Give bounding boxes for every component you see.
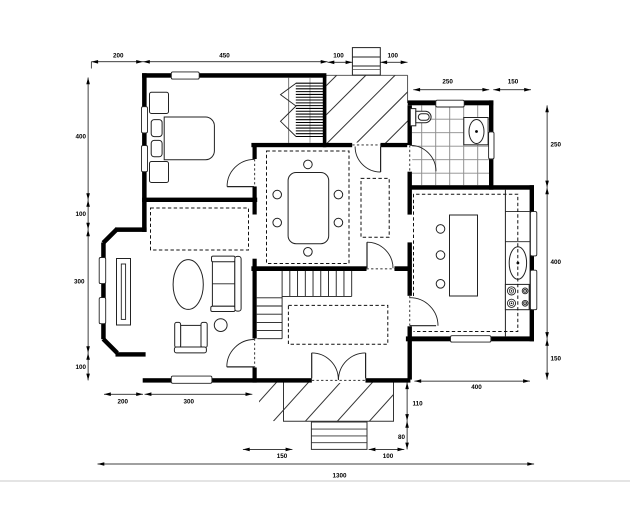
- svg-text:150: 150: [277, 453, 288, 460]
- svg-text:200: 200: [118, 398, 129, 405]
- svg-text:100: 100: [383, 453, 394, 460]
- svg-text:400: 400: [551, 259, 562, 266]
- svg-text:300: 300: [74, 278, 85, 285]
- svg-text:100: 100: [75, 364, 86, 371]
- svg-text:250: 250: [442, 79, 453, 86]
- svg-text:300: 300: [184, 398, 195, 405]
- svg-text:400: 400: [75, 133, 86, 140]
- svg-text:100: 100: [333, 52, 344, 59]
- svg-text:1300: 1300: [332, 472, 347, 479]
- svg-text:100: 100: [75, 211, 86, 218]
- svg-text:80: 80: [398, 434, 406, 441]
- svg-text:250: 250: [551, 142, 562, 149]
- svg-text:150: 150: [551, 355, 562, 362]
- svg-text:150: 150: [508, 79, 519, 86]
- svg-text:400: 400: [471, 384, 482, 391]
- svg-text:200: 200: [113, 53, 124, 60]
- svg-text:110: 110: [413, 400, 424, 407]
- svg-text:450: 450: [219, 53, 230, 60]
- svg-text:100: 100: [388, 52, 399, 59]
